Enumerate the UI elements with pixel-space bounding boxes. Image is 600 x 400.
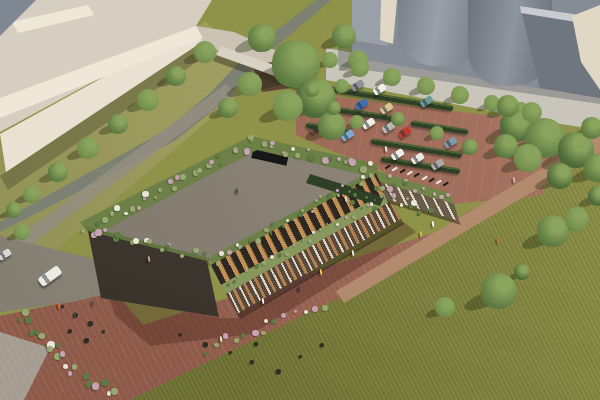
bicycle <box>392 167 398 171</box>
roof-planting-shrub <box>227 283 230 286</box>
tree <box>514 144 542 172</box>
roof-planting-shrub <box>25 317 32 324</box>
roof-planting-shrub <box>83 373 90 380</box>
roof-planting-shrub <box>203 251 207 255</box>
roof-planting-shrub <box>255 264 259 268</box>
person <box>497 237 500 243</box>
tree <box>327 101 341 115</box>
roof-planting-shrub <box>115 232 121 238</box>
roof-planting-shrub <box>319 195 322 198</box>
tree <box>218 98 238 118</box>
aerial-rendering-scene <box>0 0 600 400</box>
roof-planting-shrub <box>110 211 114 215</box>
roof-planting-shrub <box>328 193 334 199</box>
roof-planting-shrub <box>158 188 163 193</box>
roof-planting-shrub <box>439 195 443 199</box>
roof-planting-shrub <box>409 205 413 209</box>
roof-planting-shrub <box>369 173 374 178</box>
tree <box>565 207 589 231</box>
person <box>320 269 323 275</box>
car <box>354 98 368 111</box>
roof-planting-shrub <box>298 212 303 217</box>
roof-planting-shrub <box>353 193 357 197</box>
tree <box>137 89 159 111</box>
bicycle <box>429 177 435 181</box>
roof-planting-shrub <box>311 210 314 213</box>
roof-planting-shrub <box>270 145 273 148</box>
roof-planting-shrub <box>114 205 120 211</box>
roof-planting-shrub <box>133 238 139 244</box>
tree <box>497 95 519 117</box>
roof-planting-shrub <box>349 159 356 166</box>
bicycle <box>400 169 406 173</box>
roof-planting-shrub <box>286 219 289 222</box>
roof-planting-shrub <box>403 181 407 185</box>
person <box>92 300 95 306</box>
roof-planting-shrub <box>264 228 269 233</box>
roof-planting-shrub <box>241 333 245 337</box>
roof-planting-shrub <box>68 371 73 376</box>
scene-objects-layer <box>0 0 600 400</box>
tree <box>14 224 30 240</box>
person <box>148 256 151 262</box>
terrace-table <box>88 321 93 326</box>
roof-planting-shrub <box>283 152 288 157</box>
tree <box>238 72 262 96</box>
tree <box>462 139 478 155</box>
roof-planting-shrub <box>350 200 355 205</box>
roof-planting-shrub <box>380 196 382 198</box>
tree <box>481 273 517 309</box>
tree <box>23 185 41 203</box>
roof-planting-shrub <box>336 223 340 227</box>
tree <box>322 52 338 68</box>
person <box>513 177 516 183</box>
roof-planting-shrub <box>142 191 149 198</box>
roof-planting-shrub <box>47 346 53 352</box>
roof-planting-shrub <box>204 352 208 356</box>
roof-planting-shrub <box>361 175 365 179</box>
roof-planting-shrub <box>278 253 282 257</box>
bicycle <box>407 171 413 175</box>
tree <box>108 114 128 134</box>
roof-planting-shrub <box>319 228 322 231</box>
roof-planting-shrub <box>216 262 220 266</box>
tree <box>494 134 518 158</box>
person <box>432 221 435 227</box>
person <box>236 188 239 194</box>
roof-planting-shrub <box>270 255 274 259</box>
terrace-table <box>179 333 182 336</box>
bicycle <box>443 181 449 185</box>
roof-planting-shrub <box>433 192 436 195</box>
roof-planting-shrub <box>92 383 99 390</box>
roof-planting-shrub <box>373 206 378 211</box>
roof-planting-shrub <box>337 157 341 161</box>
roof-planting-shrub <box>197 168 202 173</box>
roof-planting-shrub <box>281 313 286 318</box>
roof-planting-shrub <box>302 239 304 241</box>
roof-planting-shrub <box>56 343 60 347</box>
tree <box>584 154 600 182</box>
roof-planting-shrub <box>271 222 274 225</box>
terrace-table <box>250 360 254 364</box>
tree <box>451 86 469 104</box>
person <box>420 231 423 237</box>
roof-planting-shrub <box>175 175 179 179</box>
roof-planting-shrub <box>322 157 329 164</box>
bicycle <box>414 173 420 177</box>
roof-planting-shrub <box>95 229 101 235</box>
terrace-table <box>61 305 64 308</box>
tree <box>332 24 356 48</box>
roof-planting-shrub <box>166 244 170 248</box>
terrace-table <box>299 355 302 358</box>
roof-planting-shrub <box>293 244 295 246</box>
roof-planting-shrub <box>111 388 118 395</box>
roof-planting-shrub <box>374 199 376 201</box>
roof-planting-shrub <box>388 174 392 178</box>
tree <box>351 59 369 77</box>
tree <box>194 41 216 63</box>
roof-planting-shrub <box>282 225 285 228</box>
roof-planting-shrub <box>264 319 268 323</box>
roof-planting-shrub <box>147 239 152 244</box>
tree <box>391 112 405 126</box>
roof-planting-shrub <box>308 239 312 243</box>
roof-planting-shrub <box>446 193 450 197</box>
roof-planting-shrub <box>262 261 266 265</box>
person <box>352 250 355 256</box>
roof-planting-shrub <box>72 364 77 369</box>
car <box>350 79 364 92</box>
roof-planting-shrub <box>223 333 228 338</box>
roof-planting-shrub <box>270 232 273 235</box>
roof-planting-shrub <box>101 379 109 387</box>
roof-planting-shrub <box>294 310 297 313</box>
car <box>0 248 11 261</box>
roof-planting-shrub <box>81 229 85 233</box>
roof-planting-shrub <box>180 254 183 257</box>
roof-planting-shrub <box>193 248 199 254</box>
tree <box>6 202 22 218</box>
roof-planting-shrub <box>422 187 425 190</box>
tree <box>417 77 435 95</box>
terrace-table <box>229 351 232 354</box>
person <box>345 196 348 202</box>
tree <box>435 297 455 317</box>
tree <box>430 126 444 140</box>
tree <box>350 115 364 129</box>
terrace-table <box>102 330 105 333</box>
roof-planting-shrub <box>168 179 172 183</box>
roof-planting-shrub <box>209 160 213 164</box>
roof-planting-shrub <box>380 186 385 191</box>
roof-planting-shrub <box>234 338 239 343</box>
roof-planting-shrub <box>214 343 219 348</box>
roof-planting-shrub <box>102 217 108 223</box>
roof-planting-shrub <box>172 186 177 191</box>
tree <box>514 264 530 280</box>
tree <box>248 24 276 52</box>
roof-planting-shrub <box>137 206 141 210</box>
roof-planting-shrub <box>124 212 127 215</box>
roof-planting-shrub <box>154 196 157 199</box>
car <box>443 136 457 149</box>
delivery-van <box>37 265 62 287</box>
roof-planting-shrub <box>96 221 100 225</box>
tree <box>77 137 99 159</box>
roof-planting-shrub <box>359 182 364 187</box>
tree <box>318 112 346 140</box>
terrace-table <box>68 329 72 333</box>
roof-planting-shrub <box>365 196 368 199</box>
person <box>262 298 265 304</box>
roof-planting-shrub <box>374 186 379 191</box>
tree <box>547 163 573 189</box>
roof-planting-shrub <box>341 184 344 187</box>
terrace-table <box>84 338 89 343</box>
roof-planting-shrub <box>130 206 136 212</box>
bicycle <box>385 165 391 169</box>
roof-planting-shrub <box>301 209 304 212</box>
roof-planting-shrub <box>233 280 236 283</box>
roof-planting-shrub <box>413 189 417 193</box>
roof-planting-shrub <box>429 207 434 212</box>
roof-planting-shrub <box>160 248 164 252</box>
car <box>379 102 393 115</box>
roof-planting-shrub <box>307 148 310 151</box>
roof-planting-shrub <box>285 252 289 256</box>
tree <box>383 68 401 86</box>
tree <box>581 117 600 139</box>
roof-planting-shrub <box>219 163 222 166</box>
bicycle <box>436 179 442 183</box>
roof-planting-shrub <box>336 189 339 192</box>
roof-planting-shrub <box>308 154 315 161</box>
roof-planting-shrub <box>400 203 404 207</box>
roof-planting-shrub <box>190 254 193 257</box>
tree <box>273 91 303 121</box>
roof-planting-shrub <box>345 216 348 219</box>
tree <box>48 162 68 182</box>
roof-planting-shrub <box>360 166 367 173</box>
bicycle <box>422 175 428 179</box>
roof-planting-shrub <box>237 275 239 277</box>
roof-planting-shrub <box>219 251 224 256</box>
roof-planting-shrub <box>361 207 363 209</box>
roof-planting-shrub <box>417 212 421 216</box>
roof-planting-shrub <box>261 331 266 336</box>
terrace-table <box>276 369 281 374</box>
roof-planting-shrub <box>337 194 340 197</box>
tree <box>588 186 600 206</box>
tree <box>522 102 542 122</box>
tree <box>305 83 319 97</box>
roof-planting-shrub <box>351 185 355 189</box>
tree <box>335 79 349 93</box>
roof-planting-shrub <box>18 318 22 322</box>
roof-planting-shrub <box>376 172 378 174</box>
roof-planting-shrub <box>245 268 248 271</box>
roof-planting-shrub <box>329 156 333 160</box>
roof-planting-shrub <box>22 309 29 316</box>
car <box>397 126 411 139</box>
tree <box>166 66 186 86</box>
roof-planting-shrub <box>291 147 295 151</box>
roof-planting-shrub <box>103 228 107 232</box>
roof-planting-shrub <box>256 238 261 243</box>
roof-planting-shrub <box>238 245 241 248</box>
roof-planting-shrub <box>322 305 328 311</box>
terrace-table <box>320 343 324 347</box>
roof-planting-shrub <box>348 190 351 193</box>
roof-planting-shrub <box>244 148 251 155</box>
roof-planting-shrub <box>368 161 373 166</box>
roof-planting-shrub <box>352 215 356 219</box>
person <box>298 286 301 292</box>
roof-planting-shrub <box>249 239 252 242</box>
roof-planting-shrub <box>262 141 268 147</box>
roof-planting-shrub <box>252 330 258 336</box>
roof-planting-shrub <box>271 319 277 325</box>
terrace-table <box>254 342 258 346</box>
terrace-table <box>203 342 208 347</box>
roof-planting-shrub <box>63 364 68 369</box>
roof-planting-shrub <box>370 202 373 205</box>
roof-planting-shrub <box>326 223 328 225</box>
roof-planting-shrub <box>304 310 309 315</box>
roof-planting-shrub <box>180 174 185 179</box>
roof-planting-shrub <box>312 231 315 234</box>
roof-planting-shrub <box>387 186 392 191</box>
roof-planting-shrub <box>315 199 318 202</box>
roof-planting-shrub <box>39 333 44 338</box>
roof-planting-shrub <box>406 197 409 200</box>
roof-planting-shrub <box>295 153 301 159</box>
roof-planting-shrub <box>227 250 232 255</box>
roof-planting-shrub <box>312 306 318 312</box>
roof-planting-shrub <box>216 154 220 158</box>
